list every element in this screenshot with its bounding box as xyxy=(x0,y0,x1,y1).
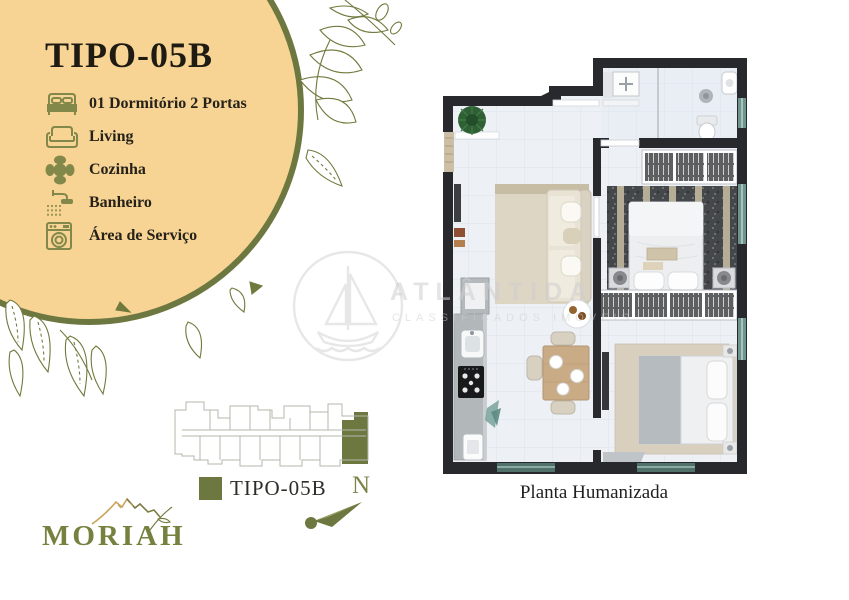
page-title: TIPO-05B xyxy=(45,34,213,76)
dining-table-icon xyxy=(45,156,83,184)
floor-plan-image xyxy=(441,56,747,474)
unit-key-swatch xyxy=(199,477,222,500)
legend-item-label: Cozinha xyxy=(89,161,146,179)
washing-machine-icon xyxy=(45,222,83,250)
brand-logo: MORIAH xyxy=(42,520,186,553)
sofa-icon xyxy=(45,123,83,151)
legend-item-banheiro: Banheiro xyxy=(45,189,247,217)
north-arrow-icon xyxy=(300,495,375,535)
highlighted-unit xyxy=(342,412,368,464)
legend-item-label: Área de Serviço xyxy=(89,227,197,245)
sailboat-watermark-icon xyxy=(286,248,410,372)
page: TIPO-05B 01 Dormitório 2 Portas xyxy=(0,0,849,600)
building-key-diagram xyxy=(170,396,380,480)
legend-item-label: Living xyxy=(89,128,133,146)
legend-item-label: Banheiro xyxy=(89,194,152,212)
legend-item-dormitorio: 01 Dormitório 2 Portas xyxy=(45,90,247,118)
legend: 01 Dormitório 2 Portas Living xyxy=(45,90,247,255)
legend-item-servico: Área de Serviço xyxy=(45,222,247,250)
legend-item-living: Living xyxy=(45,123,247,151)
legend-item-label: 01 Dormitório 2 Portas xyxy=(89,95,247,113)
shower-icon xyxy=(45,189,83,217)
legend-item-cozinha: Cozinha xyxy=(45,156,247,184)
plan-caption: Planta Humanizada xyxy=(441,482,747,504)
bed-icon xyxy=(45,90,83,118)
